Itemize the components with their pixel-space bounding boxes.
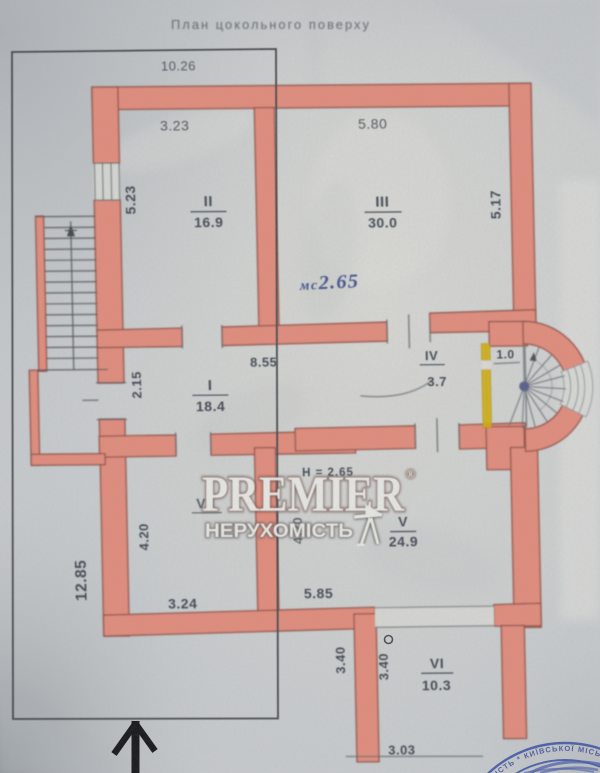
svg-text:III: III [375, 194, 389, 211]
svg-text:5.85: 5.85 [304, 585, 334, 601]
svg-text:18.4: 18.4 [196, 398, 226, 414]
svg-text:®: ® [406, 467, 415, 481]
svg-text:12.85: 12.85 [73, 560, 91, 601]
svg-text:10.3: 10.3 [422, 677, 452, 693]
svg-text:24.9: 24.9 [389, 533, 419, 549]
svg-text:II: II [203, 193, 213, 210]
svg-text:1.0: 1.0 [496, 347, 514, 361]
svg-text:30.0: 30.0 [368, 214, 398, 230]
svg-text:3.03: 3.03 [388, 742, 416, 757]
svg-text:3.24: 3.24 [168, 595, 198, 611]
svg-text:IV: IV [425, 348, 439, 363]
svg-text:5.80: 5.80 [358, 116, 388, 132]
svg-text:3.40: 3.40 [376, 653, 392, 680]
svg-text:10.26: 10.26 [161, 58, 196, 73]
svg-text:16.9: 16.9 [194, 214, 224, 230]
svg-text:3.23: 3.23 [160, 117, 190, 133]
svg-text:4.20: 4.20 [136, 523, 152, 550]
svg-text:3.40: 3.40 [333, 646, 349, 673]
svg-text:3.7: 3.7 [427, 374, 447, 389]
svg-text:8.55: 8.55 [250, 355, 278, 370]
svg-text:План цокольного поверху: План цокольного поверху [171, 18, 371, 32]
svg-text:5.17: 5.17 [487, 190, 504, 219]
svg-text:VI: VI [430, 655, 445, 671]
svg-text:НЕРУХОМІСТЬ: НЕРУХОМІСТЬ [205, 520, 353, 542]
svg-text:I: I [208, 377, 213, 394]
svg-text:2.15: 2.15 [129, 371, 145, 398]
svg-text:5.23: 5.23 [122, 185, 139, 214]
